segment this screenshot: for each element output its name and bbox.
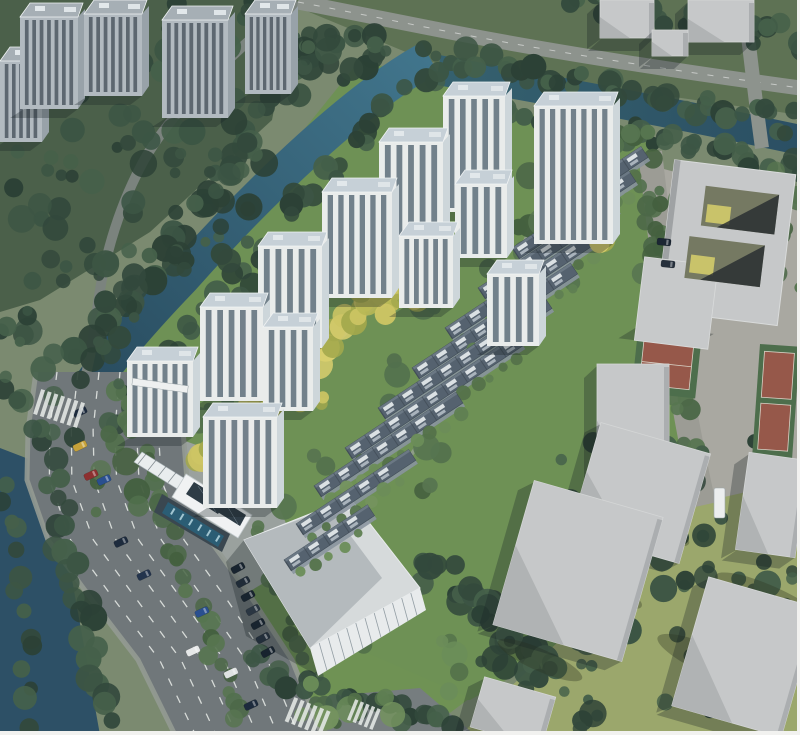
car <box>661 260 676 268</box>
residential-tower <box>117 347 200 446</box>
residential-tower <box>524 92 620 253</box>
bus <box>714 488 725 518</box>
residential-tower <box>389 222 460 317</box>
residential-tower <box>190 293 270 410</box>
context-tower <box>10 3 85 118</box>
aerial-site-rendering: Aerial architectural rendering of a rive… <box>0 0 800 735</box>
residential-tower <box>193 403 284 517</box>
context-tower <box>152 6 235 127</box>
tennis-courts <box>752 344 800 459</box>
context-tower <box>74 0 149 105</box>
rendering-canvas <box>0 0 800 735</box>
car <box>657 238 672 246</box>
residential-tower <box>477 260 546 355</box>
